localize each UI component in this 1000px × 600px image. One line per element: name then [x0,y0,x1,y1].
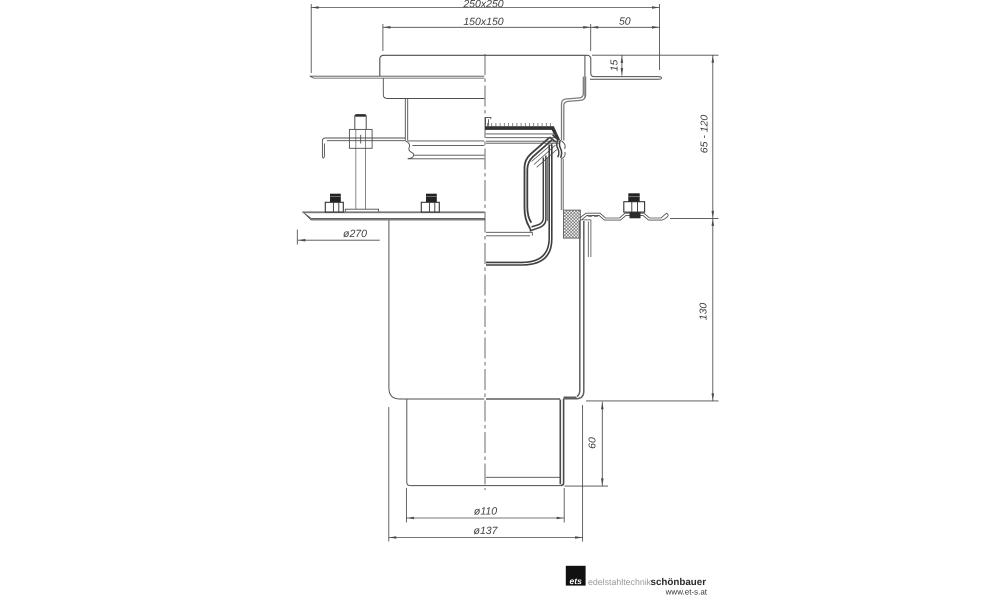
svg-text:250x250: 250x250 [462,0,503,10]
svg-text:edelstahltechnik: edelstahltechnik [588,577,652,587]
svg-text:schönbauer: schönbauer [650,577,706,588]
svg-text:65 - 120: 65 - 120 [699,115,711,154]
svg-text:130: 130 [698,303,710,321]
svg-text:ø137: ø137 [474,525,499,537]
svg-text:60: 60 [587,437,599,449]
svg-text:ets: ets [570,576,583,586]
svg-text:50: 50 [619,16,631,28]
svg-text:150x150: 150x150 [463,16,503,28]
svg-text:ø110: ø110 [474,505,497,517]
svg-text:www.et-s.at: www.et-s.at [665,587,708,596]
svg-text:15: 15 [609,60,621,72]
svg-text:ø270: ø270 [343,228,367,240]
